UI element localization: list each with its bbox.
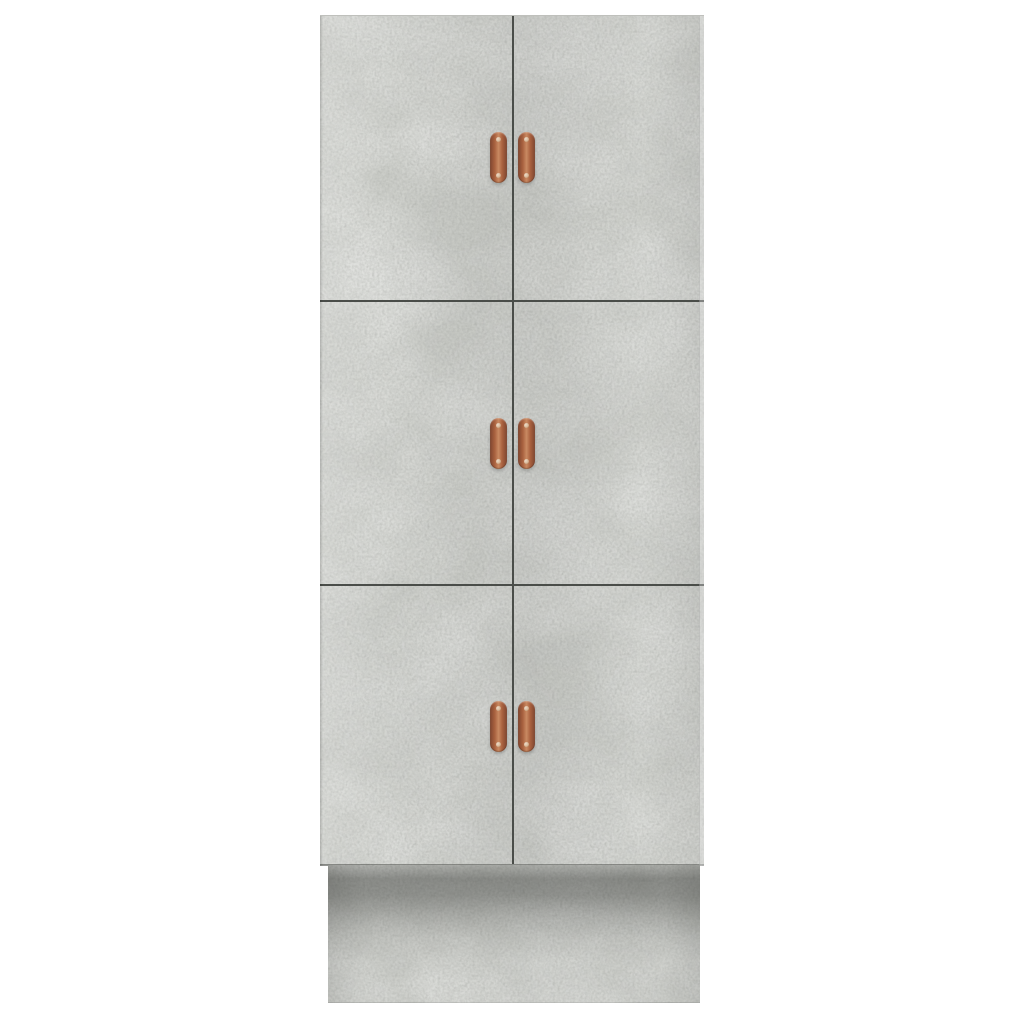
horizontal-seam-upper — [320, 300, 704, 302]
door-cast-shadow — [328, 865, 700, 1003]
handle-screw-bottom — [496, 459, 501, 464]
handle-top-left-door — [490, 132, 507, 183]
cabinet-plinth — [328, 865, 700, 1003]
handle-screw-top — [524, 423, 529, 428]
handle-screw-bottom — [496, 173, 501, 178]
cabinet-left-edge — [320, 16, 323, 866]
door-gap-middle-row — [512, 302, 514, 584]
handle-screw-top — [496, 423, 501, 428]
handle-screw-bottom — [496, 742, 501, 747]
handle-bottom-left-door — [490, 701, 507, 752]
handle-screw-top — [524, 706, 529, 711]
handle-middle-left-door — [490, 418, 507, 469]
handle-screw-bottom — [524, 742, 529, 747]
handle-middle-right-door — [518, 418, 535, 469]
cabinet-right-side-panel — [699, 16, 704, 866]
handle-screw-top — [496, 137, 501, 142]
handle-screw-bottom — [524, 173, 529, 178]
horizontal-seam-lower — [320, 584, 704, 586]
door-gap-top-row — [512, 16, 514, 300]
handle-screw-top — [496, 706, 501, 711]
handle-top-right-door — [518, 132, 535, 183]
cabinet-door-front — [320, 15, 704, 865]
handle-bottom-right-door — [518, 701, 535, 752]
handle-screw-top — [524, 137, 529, 142]
door-gap-bottom-row — [512, 586, 514, 864]
concrete-texture — [328, 865, 700, 1003]
cabinet — [320, 15, 704, 1003]
handle-screw-bottom — [524, 459, 529, 464]
product-photo — [0, 0, 1024, 1024]
